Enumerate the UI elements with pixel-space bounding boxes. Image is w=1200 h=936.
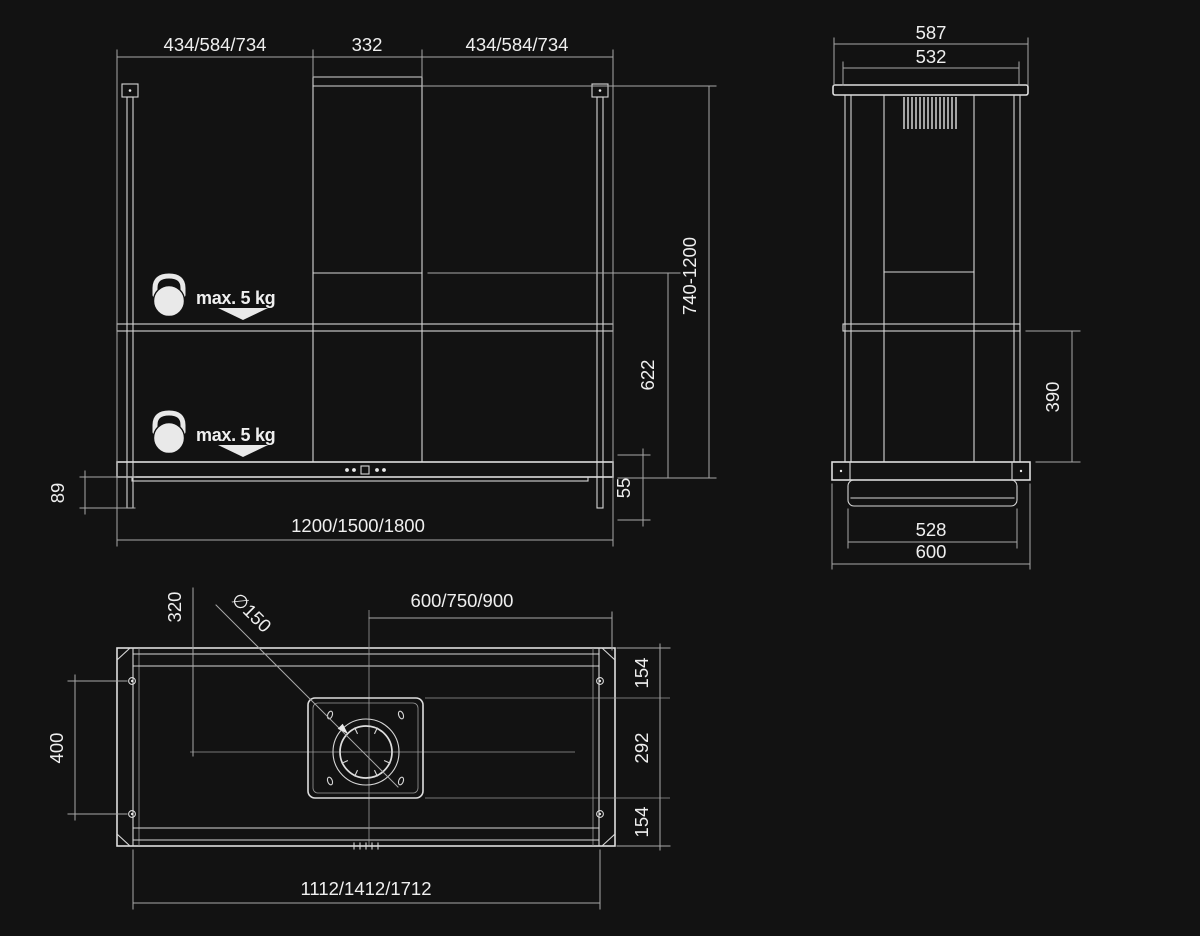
ceiling-plate (833, 85, 1028, 95)
shelf (117, 324, 613, 331)
max-load-lower-label: max. 5 kg (196, 425, 275, 445)
dim-edge-bottom: 154 (631, 807, 652, 838)
kettlebell-ball-icon (154, 423, 185, 454)
dim-center-section: 292 (631, 733, 652, 764)
dim-rod-extension: 89 (47, 483, 68, 504)
control-dot-2 (352, 468, 356, 472)
rivet-dot (1020, 470, 1022, 472)
right-suspension-rod (597, 97, 603, 508)
hood-body-side (832, 462, 1030, 480)
rivet-dot (840, 470, 842, 472)
control-dot-3 (375, 468, 379, 472)
dim-top-left: 434/584/734 (164, 34, 267, 55)
dim-top-center: 332 (352, 34, 383, 55)
dim-depth-587: 587 (916, 22, 947, 43)
front-structure (117, 77, 613, 508)
screw-slot (397, 776, 404, 785)
control-display (361, 466, 369, 474)
side-structure (832, 85, 1030, 506)
front-view: max. 5 kg max. 5 kg 434/584/734 332 434/… (47, 34, 716, 546)
dim-half-width: 600/750/900 (411, 590, 514, 611)
arrow-down-icon (218, 308, 268, 320)
dim-height-range: 740-1200 (679, 237, 700, 315)
dim-edge-top: 154 (631, 658, 652, 689)
right-rod-side (1014, 95, 1020, 462)
top-view: 320 ∅150 600/750/900 154 292 154 400 (46, 588, 670, 909)
left-suspension-rod (127, 97, 133, 508)
arrow-down-icon (218, 445, 268, 457)
hood-lower-lip-side (848, 480, 1017, 506)
control-dot-4 (382, 468, 386, 472)
screw-slot (326, 776, 333, 785)
chimney-outline (313, 77, 422, 462)
left-rod-side (845, 95, 851, 462)
screw-slot (397, 710, 404, 719)
side-view: 587 532 390 528 600 (832, 22, 1080, 569)
dim-depth-532: 532 (916, 46, 947, 67)
front-dimensions: 434/584/734 332 434/584/734 740-1200 622… (47, 34, 716, 546)
kettlebell-ball-icon (154, 286, 185, 317)
plan-dimensions: 320 ∅150 600/750/900 154 292 154 400 (46, 588, 670, 909)
dim-panel-gap: 55 (613, 478, 634, 499)
plan-outline (117, 648, 615, 846)
dim-duct-diameter: ∅150 (228, 588, 276, 636)
technical-drawing-island-hood: max. 5 kg max. 5 kg 434/584/734 332 434/… (0, 0, 1200, 936)
max-load-lower: max. 5 kg (154, 413, 276, 457)
max-load-upper-label: max. 5 kg (196, 288, 275, 308)
shelf-side (843, 324, 1020, 331)
control-dot-1 (345, 468, 349, 472)
max-load-upper: max. 5 kg (154, 276, 276, 320)
vent-grille (904, 97, 956, 129)
dim-top-right: 434/584/734 (466, 34, 569, 55)
dim-duct-offset: 320 (164, 592, 185, 623)
dim-rod-spacing: 400 (46, 733, 67, 764)
dim-shelf-drop: 390 (1042, 382, 1063, 413)
control-panel (345, 466, 386, 474)
dim-depth-600: 600 (916, 541, 947, 562)
hood-body-bar (117, 462, 613, 477)
right-cap-screw-dot (599, 89, 602, 92)
dim-overall-width: 1200/1500/1800 (291, 515, 425, 536)
dim-depth-528: 528 (916, 519, 947, 540)
duct-mounting-plate (308, 698, 423, 798)
left-cap-screw-dot (129, 89, 132, 92)
plan-structure (117, 610, 615, 849)
screw-slot (326, 710, 333, 719)
dim-shelf-to-bottom: 622 (637, 360, 658, 391)
dim-rail-length: 1112/1412/1712 (301, 878, 432, 899)
